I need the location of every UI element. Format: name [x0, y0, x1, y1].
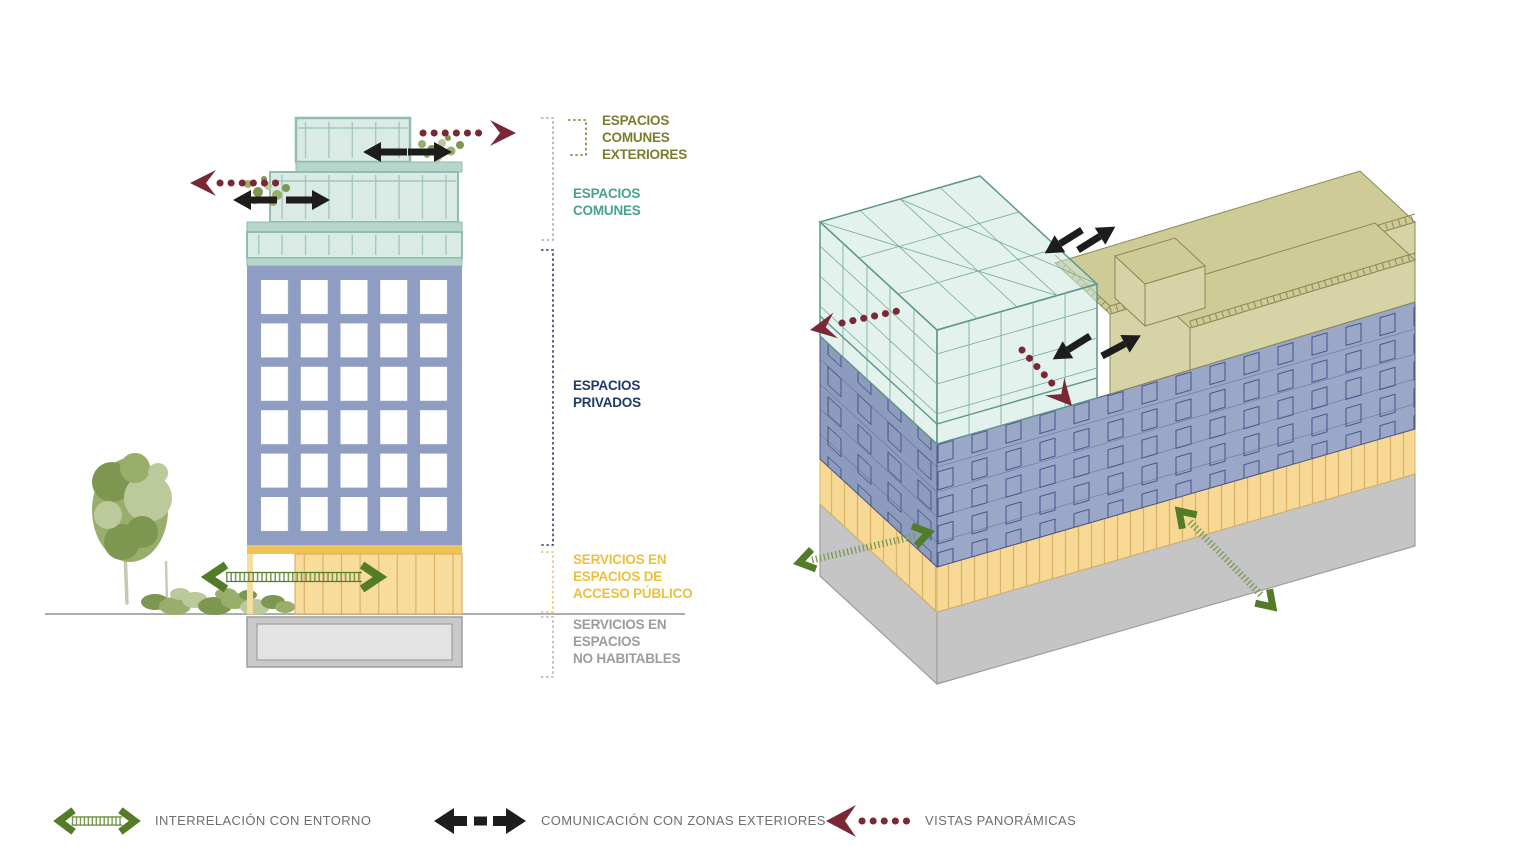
legend-label-interrelacion: INTERRELACIÓN CON ENTORNO — [155, 813, 371, 828]
communication-arrow-icon — [430, 804, 530, 838]
label-espacios-comunes: ESPACIOS COMUNES — [573, 185, 641, 219]
bracket-servicios-no-habitables — [541, 617, 553, 677]
label-espacios-privados: ESPACIOS PRIVADOS — [573, 377, 641, 411]
label-espacios-comunes-exteriores: ESPACIOS COMUNES EXTERIORES — [602, 112, 687, 163]
legend-label-comunicacion: COMUNICACIÓN CON ZONAS EXTERIORES — [541, 813, 826, 828]
tree — [92, 453, 172, 603]
elevation-common-floor-lower — [247, 232, 462, 266]
panoramic-view-arrow-right — [423, 120, 516, 146]
elevation-private-floors — [247, 266, 462, 545]
label-servicios-no-habitables: SERVICIOS EN ESPACIOS NO HABITABLES — [573, 616, 680, 667]
architectural-diagram: ESPACIOS COMUNES EXTERIORES ESPACIOS COM… — [0, 0, 1519, 854]
legend-label-vistas: VISTAS PANORÁMICAS — [925, 813, 1076, 828]
elevation-common-floor-upper — [247, 172, 462, 232]
bracket-comunes-exteriores — [568, 120, 586, 155]
panoramic-views-arrow-icon — [820, 804, 925, 838]
bracket-servicios-publico — [541, 552, 553, 612]
shrubs — [141, 588, 295, 615]
label-servicios-acceso-publico: SERVICIOS EN ESPACIOS DE ACCESO PÚBLICO — [573, 551, 692, 602]
bracket-comunes — [541, 118, 553, 240]
interrelation-arrow-icon — [52, 804, 142, 838]
elevation-basement — [247, 617, 462, 667]
axonometric-diagram — [760, 60, 1460, 760]
bracket-privados — [541, 250, 553, 545]
